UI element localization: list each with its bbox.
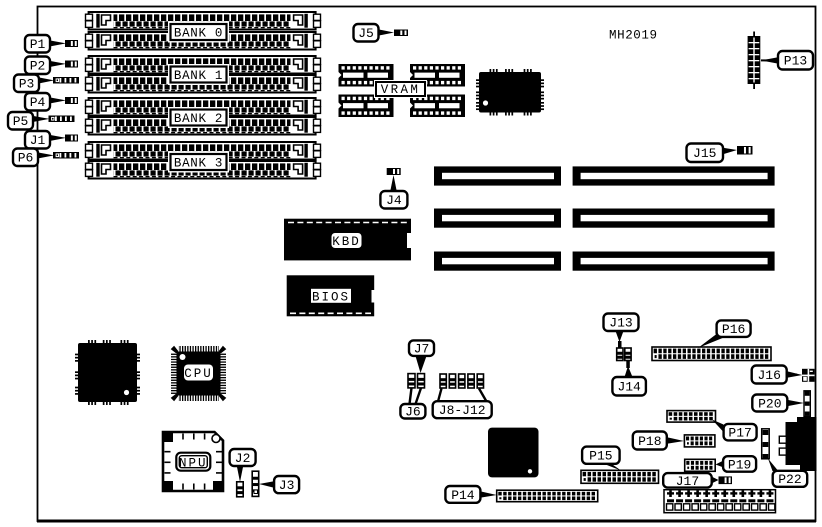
svg-text:J1: J1 xyxy=(30,133,46,148)
svg-text:P18: P18 xyxy=(638,434,661,449)
svg-text:VRAM: VRAM xyxy=(381,83,421,97)
svg-text:J17: J17 xyxy=(676,474,699,489)
svg-text:J5: J5 xyxy=(358,26,374,41)
svg-text:BANK 1: BANK 1 xyxy=(174,69,223,83)
svg-text:P15: P15 xyxy=(589,449,612,464)
svg-text:P17: P17 xyxy=(728,426,751,441)
svg-text:J13: J13 xyxy=(609,316,632,331)
svg-text:BIOS: BIOS xyxy=(312,290,350,304)
svg-text:P19: P19 xyxy=(728,457,751,472)
svg-text:P2: P2 xyxy=(30,59,46,74)
svg-text:J15: J15 xyxy=(693,146,716,161)
svg-text:P1: P1 xyxy=(30,37,46,52)
svg-text:P14: P14 xyxy=(451,488,475,503)
svg-text:KBD: KBD xyxy=(332,235,361,249)
svg-text:J3: J3 xyxy=(279,478,295,493)
svg-text:BANK 0: BANK 0 xyxy=(174,26,223,40)
svg-text:J7: J7 xyxy=(414,342,430,357)
svg-text:J16: J16 xyxy=(757,368,780,383)
svg-text:CPU: CPU xyxy=(184,367,213,381)
svg-text:P16: P16 xyxy=(722,322,745,337)
svg-text:P13: P13 xyxy=(784,54,807,69)
svg-text:P22: P22 xyxy=(778,472,801,487)
svg-text:P3: P3 xyxy=(19,77,35,92)
svg-text:P20: P20 xyxy=(758,396,781,411)
svg-text:BANK 3: BANK 3 xyxy=(174,156,223,170)
svg-text:MH2019: MH2019 xyxy=(609,29,658,43)
svg-text:J2: J2 xyxy=(235,451,251,466)
svg-text:P6: P6 xyxy=(18,151,34,166)
svg-text:NPU: NPU xyxy=(179,457,208,471)
svg-text:J8-J12: J8-J12 xyxy=(439,403,486,418)
svg-text:P5: P5 xyxy=(13,114,29,129)
svg-text:J14: J14 xyxy=(617,380,641,395)
svg-text:J6: J6 xyxy=(405,405,421,420)
svg-text:J4: J4 xyxy=(386,193,402,208)
svg-text:P4: P4 xyxy=(30,95,46,110)
svg-text:BANK 2: BANK 2 xyxy=(174,112,223,126)
